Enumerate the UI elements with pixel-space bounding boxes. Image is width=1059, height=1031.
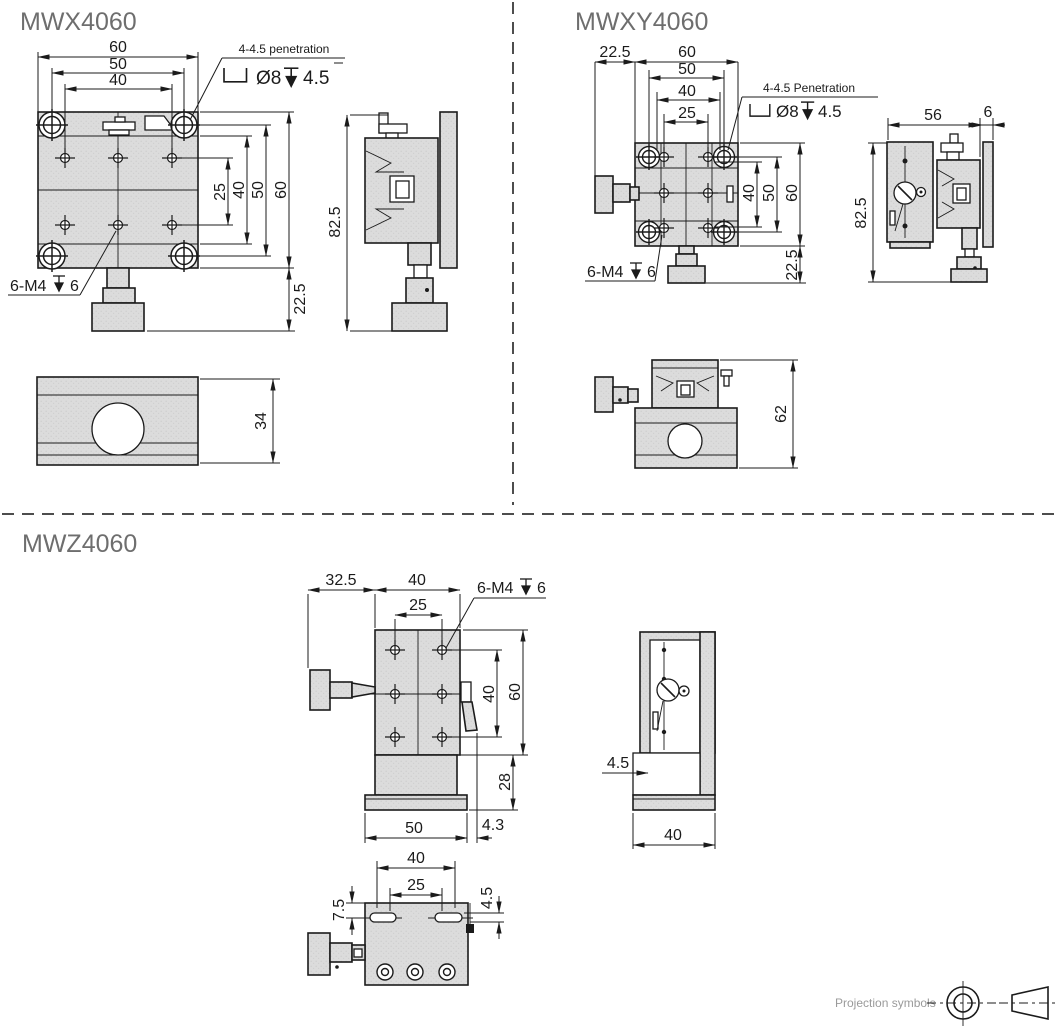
depth-symbol-icon (53, 276, 65, 291)
mwxy-right-dim-60: 60 (784, 184, 801, 202)
mwxy-front-bottom-knob (668, 246, 705, 283)
mwx-counterbore-depth: 4.5 (303, 68, 329, 89)
mwz-top-dim-32-5: 32.5 (325, 572, 356, 589)
mwx-side-back-plate (440, 112, 457, 268)
mounting-hole-icon (377, 964, 393, 980)
mwxy4060-bottom-view: 62 (595, 360, 798, 468)
mwx-tap-depth: 6 (70, 278, 79, 295)
first-angle-circle-icon (927, 981, 999, 1026)
mwz-bottomview-dim-4-5: 4.5 (479, 887, 496, 909)
mwx-bottom-knob-hole (92, 403, 144, 455)
mwxy-tap-note: 6-M4 (587, 264, 624, 281)
mwz4060-title: MWZ4060 (22, 530, 137, 558)
mwx-right-dim-25: 25 (212, 183, 229, 201)
mwz4060-section: MWZ4060 (22, 530, 715, 985)
mwxy-penetration-note: 4-4.5 Penetration (763, 81, 855, 95)
mwxy-left-dim-22-5: 22.5 (599, 44, 630, 61)
mwz-bottom-slot (435, 913, 462, 922)
mwx4060-title: MWX4060 (20, 8, 137, 36)
mwx4060-side-view: 82.5 (327, 112, 457, 331)
mwz-bottom-dim-4-3: 4.3 (482, 817, 504, 834)
mwxy-counterbore-depth: 4.5 (818, 102, 842, 121)
projection-symbols: Projection symbols (835, 981, 1058, 1026)
mwx4060-bottom-view: 34 (37, 377, 280, 465)
mwxy-side-knob (951, 228, 987, 282)
mwxy-penetration-callout: 4-4.5 Penetration Ø8 4.5 (728, 81, 878, 150)
mwz-dim-28: 28 (497, 773, 514, 791)
mounting-hole-icon (439, 964, 455, 980)
mwz-bottomview-dim-25: 25 (407, 877, 425, 894)
mwxy-front-left-knob (595, 176, 639, 213)
mwz-bottom-slot (370, 913, 396, 922)
depth-symbol-icon (284, 68, 298, 86)
mwz-right-dim-40: 40 (481, 685, 498, 703)
mwxy-dim-22-5: 22.5 (784, 249, 801, 280)
mwz-side-back-strip (700, 632, 715, 795)
depth-symbol-icon (801, 102, 814, 119)
mwz-top-dim-40: 40 (408, 572, 426, 589)
mwz-bottom-dim-50: 50 (405, 820, 423, 837)
mwz-bottomview-dim-7-5: 7.5 (331, 899, 348, 921)
mwx-top-dim-40: 40 (109, 72, 127, 89)
mwx-dim-22-5: 22.5 (292, 283, 309, 314)
mwxy4060-section: MWXY4060 (575, 8, 1005, 468)
mwxy4060-front-view: 22.5 60 50 40 25 40 50 60 22.5 4-4.5 Pen… (585, 44, 878, 283)
mwx-bottom-dim-34: 34 (253, 412, 270, 430)
mwz-front-base (365, 795, 467, 810)
mwx-side-knob (392, 243, 447, 331)
first-angle-cone-icon (999, 987, 1058, 1019)
mwxy-right-dim-50: 50 (761, 184, 778, 202)
drawing-canvas: MWX4060 (0, 0, 1059, 1031)
depth-symbol-icon (630, 263, 642, 278)
mwx4060-front-view: 60 50 40 25 40 50 60 22.5 4-4.5 penetrat… (8, 39, 345, 331)
mwz-tap-callout: 6-M4 6 (446, 579, 546, 648)
mwxy-right-dim-40: 40 (741, 184, 758, 202)
mwxy-top-dim-40: 40 (678, 83, 696, 100)
mwx-right-dim-40: 40 (231, 181, 248, 199)
mwz-right-dim-60: 60 (507, 683, 524, 701)
mwxy-side-dim-82-5: 82.5 (853, 197, 870, 228)
mwz-bottomview-dim-40: 40 (407, 850, 425, 867)
mwxy-side-dim-56: 56 (924, 107, 942, 124)
mwx-right-dim-50: 50 (250, 181, 267, 199)
mwxy-side-dim-6: 6 (984, 104, 993, 121)
counterbore-icon (224, 68, 247, 82)
mwx-top-dim-60: 60 (109, 39, 127, 56)
mwz-side-base (633, 795, 715, 810)
mwx-penetration-note: 4-4.5 penetration (239, 42, 330, 56)
mwxy-bottom-knob-hole (668, 424, 702, 458)
mwz-bottom-knob (308, 933, 365, 975)
depth-symbol-icon (520, 579, 532, 594)
mwz-front-pedestal (375, 755, 457, 795)
mwz4060-bottom-view: 40 25 7.5 4.5 (308, 850, 504, 985)
mwxy-tap-depth: 6 (647, 264, 656, 281)
mwx4060-section: MWX4060 (8, 8, 457, 465)
mwz-side-dim-4-5: 4.5 (607, 755, 629, 772)
mwz4060-side-view: 4.5 40 (602, 632, 715, 849)
mwx-top-dim-50: 50 (109, 56, 127, 73)
mwx-counterbore-dia: Ø8 (256, 68, 281, 89)
mwx-right-dim-60: 60 (273, 181, 290, 199)
mwz-tap-note: 6-M4 (477, 580, 514, 597)
mwxy4060-title: MWXY4060 (575, 8, 708, 36)
mwx-front-knob (92, 268, 144, 331)
mwxy-counterbore-dia: Ø8 (776, 102, 799, 121)
mwx-penetration-callout: 4-4.5 penetration Ø8 4.5 (190, 42, 345, 120)
projection-symbols-label: Projection symbols (835, 996, 936, 1010)
mwxy-bottom-dim-62: 62 (773, 405, 790, 423)
mwz-side-dim-40: 40 (664, 827, 682, 844)
mwxy-top-dim-50: 50 (678, 61, 696, 78)
mwz4060-front-view: 32.5 40 25 40 60 28 50 4.3 6-M4 6 (308, 572, 546, 843)
mwz-front-knob (310, 670, 375, 710)
mwx-tap-note: 6-M4 (10, 278, 47, 295)
mwxy-bottom-knob (595, 377, 638, 412)
counterbore-icon (750, 104, 770, 116)
mwxy4060-side-view: 56 6 82.5 (853, 104, 1005, 282)
mwxy-top-dim-25: 25 (678, 105, 696, 122)
mwxy-side-back-plate (983, 142, 993, 247)
mwxy-top-dim-60: 60 (678, 44, 696, 61)
mwz-tap-depth: 6 (537, 580, 546, 597)
mwx-side-dim-82-5: 82.5 (327, 206, 344, 237)
mwz-front-plate (375, 630, 460, 755)
mwz-top-dim-25: 25 (409, 597, 427, 614)
mwz-side-lower-block (633, 753, 700, 795)
mounting-hole-icon (407, 964, 423, 980)
